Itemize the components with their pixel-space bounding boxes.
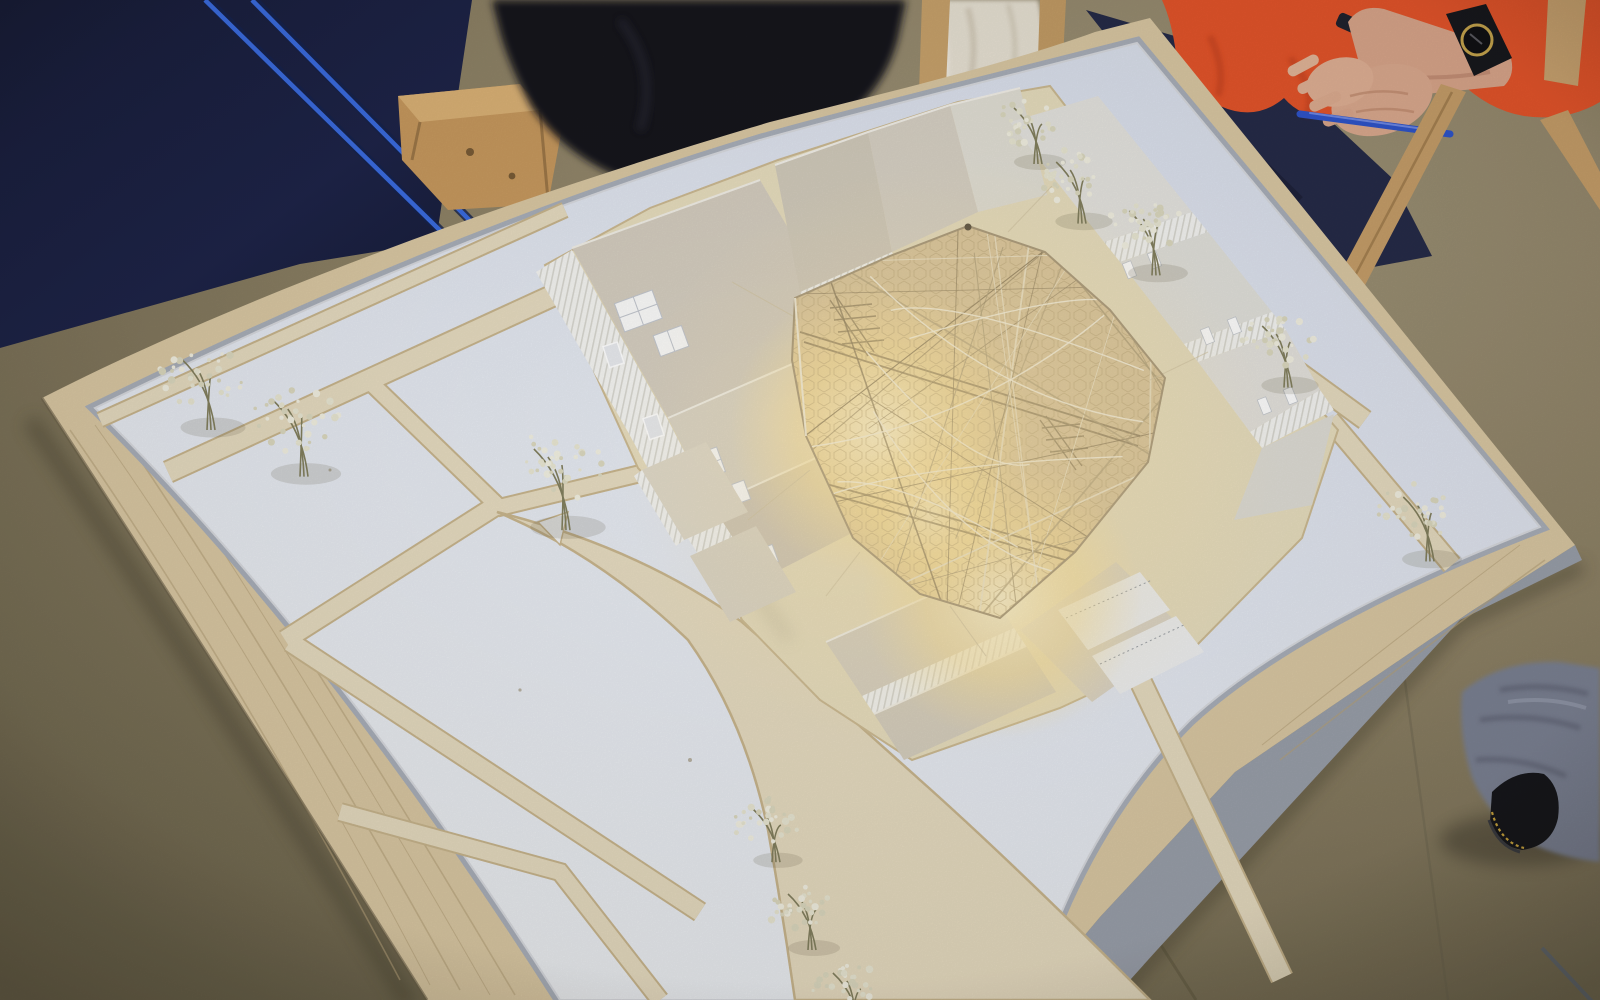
scene-canvas: Photograph of an architectural scale mod… (0, 0, 1600, 1000)
photo-architectural-model: Photograph of an architectural scale mod… (0, 0, 1600, 1000)
photo-effects (0, 0, 1600, 1000)
film-grain (0, 0, 1600, 1000)
